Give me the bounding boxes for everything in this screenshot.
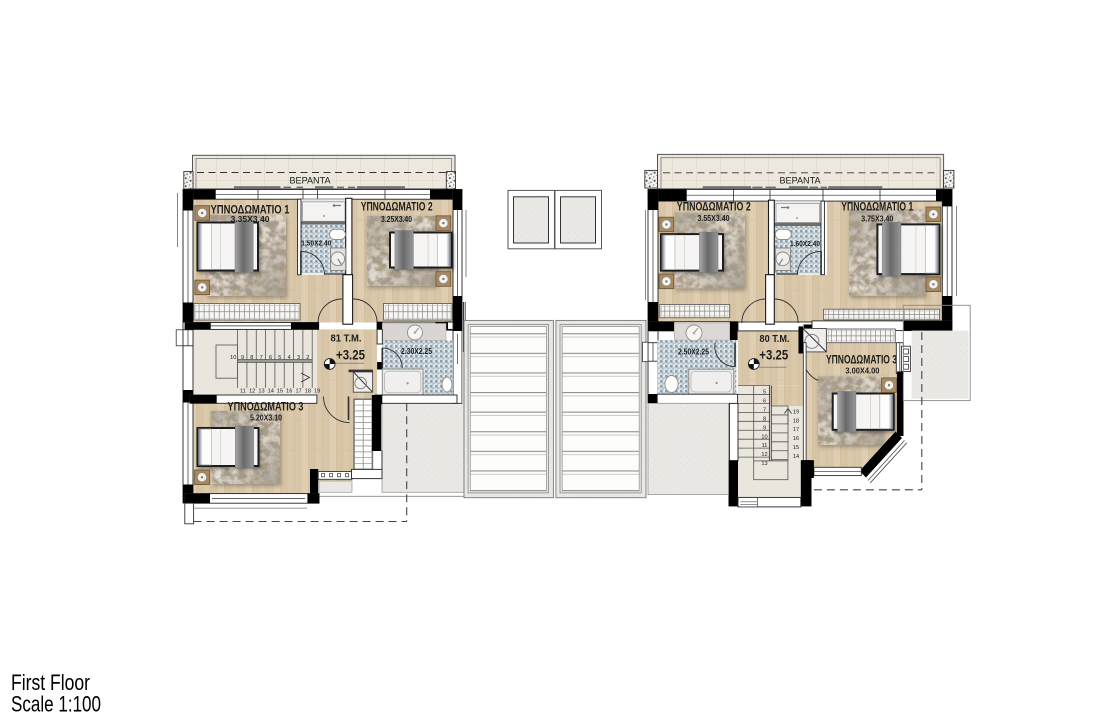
svg-text:12: 12	[249, 388, 255, 394]
svg-text:81 T.M.: 81 T.M.	[331, 333, 362, 345]
svg-text:16: 16	[793, 436, 799, 442]
svg-text:+3.25: +3.25	[759, 348, 788, 363]
svg-text:3.25X3.40: 3.25X3.40	[381, 215, 412, 224]
svg-text:7: 7	[763, 407, 766, 413]
svg-text:19: 19	[793, 409, 799, 415]
svg-text:15: 15	[277, 388, 283, 394]
svg-text:11: 11	[240, 388, 246, 394]
svg-text:2.30X2.25: 2.30X2.25	[401, 347, 432, 356]
svg-text:11: 11	[762, 443, 768, 449]
svg-text:ΒΕΡΑΝΤΑ: ΒΕΡΑΝΤΑ	[290, 176, 332, 187]
svg-text:5.20X3.10: 5.20X3.10	[250, 414, 282, 423]
svg-text:8: 8	[250, 355, 253, 361]
svg-text:ΥΠΝΟΔΩΜΑΤΙΟ 1: ΥΠΝΟΔΩΜΑΤΙΟ 1	[841, 201, 913, 213]
svg-text:14: 14	[793, 454, 799, 460]
svg-text:6: 6	[269, 355, 272, 361]
svg-text:13: 13	[258, 388, 264, 394]
svg-text:5: 5	[763, 390, 766, 396]
svg-text:1.60X2.40: 1.60X2.40	[790, 239, 820, 248]
svg-text:14: 14	[268, 388, 274, 394]
svg-text:1.50X2.40: 1.50X2.40	[301, 238, 331, 247]
svg-text:3.75X3.40: 3.75X3.40	[861, 215, 893, 224]
svg-text:9: 9	[241, 355, 244, 361]
svg-text:17: 17	[793, 427, 799, 433]
svg-text:+3.25: +3.25	[336, 348, 365, 363]
svg-text:2.50X2.25: 2.50X2.25	[678, 348, 709, 357]
svg-text:13: 13	[761, 461, 767, 467]
svg-text:ΒΕΡΑΝΤΑ: ΒΕΡΑΝΤΑ	[780, 175, 822, 186]
svg-text:5: 5	[278, 355, 281, 361]
svg-text:19: 19	[314, 388, 320, 394]
svg-text:Scale 1:100: Scale 1:100	[11, 692, 101, 717]
svg-text:3.35X3.40: 3.35X3.40	[231, 215, 271, 224]
svg-text:10: 10	[761, 434, 767, 440]
svg-text:7: 7	[260, 355, 263, 361]
svg-text:3: 3	[297, 355, 300, 361]
svg-text:ΥΠΝΟΔΩΜΑΤΙΟ 3: ΥΠΝΟΔΩΜΑΤΙΟ 3	[228, 402, 304, 414]
svg-text:2: 2	[306, 355, 309, 361]
svg-text:3.00X4.00: 3.00X4.00	[845, 367, 880, 376]
svg-text:8: 8	[763, 416, 766, 422]
svg-text:4: 4	[288, 355, 291, 361]
svg-text:18: 18	[305, 388, 311, 394]
svg-text:16: 16	[286, 388, 292, 394]
svg-text:18: 18	[793, 418, 799, 424]
svg-text:3.55X3.40: 3.55X3.40	[698, 214, 730, 223]
svg-text:6: 6	[763, 398, 766, 404]
svg-text:15: 15	[793, 445, 799, 451]
svg-text:12: 12	[761, 452, 767, 458]
svg-text:80 T.M.: 80 T.M.	[760, 333, 790, 345]
svg-text:9: 9	[763, 425, 766, 431]
svg-text:ΥΠΝΟΔΩΜΑΤΙΟ 2: ΥΠΝΟΔΩΜΑΤΙΟ 2	[677, 201, 751, 213]
svg-text:ΥΠΝΟΔΩΜΑΤΙΟ 2: ΥΠΝΟΔΩΜΑΤΙΟ 2	[361, 202, 433, 214]
svg-text:10: 10	[230, 355, 236, 361]
svg-text:17: 17	[295, 388, 301, 394]
svg-text:ΥΠΝΟΔΩΜΑΤΙΟ 3: ΥΠΝΟΔΩΜΑΤΙΟ 3	[826, 355, 897, 367]
